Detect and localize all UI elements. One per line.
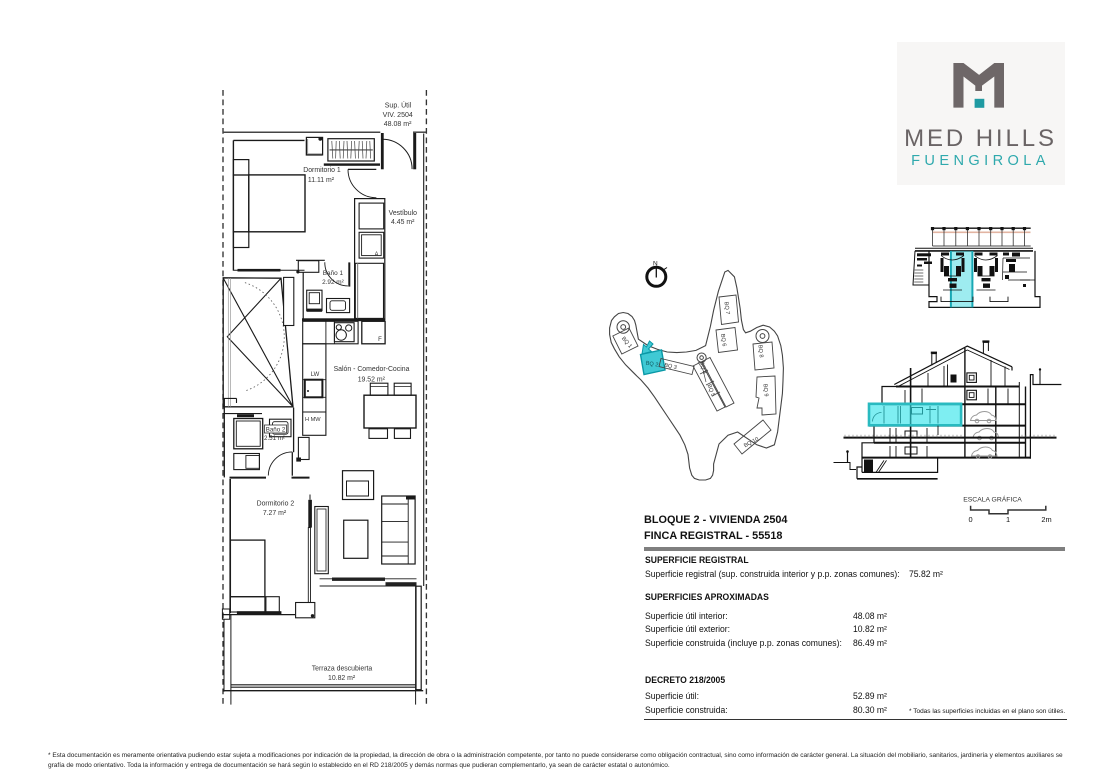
svg-text:H MW: H MW: [305, 417, 321, 423]
svg-text:Vestíbulo: Vestíbulo: [389, 210, 418, 217]
svg-text:10.82 m²: 10.82 m²: [328, 675, 356, 682]
svg-text:VIV. 2504: VIV. 2504: [383, 112, 413, 119]
svg-text:BQ 9: BQ 9: [762, 384, 769, 397]
svg-text:BQ 7: BQ 7: [723, 301, 731, 314]
svg-text:LW: LW: [311, 372, 320, 378]
svg-text:2m: 2m: [1041, 515, 1051, 524]
svg-text:FUENGIROLA: FUENGIROLA: [911, 153, 1050, 169]
svg-text:2.51 m²: 2.51 m²: [264, 435, 285, 442]
svg-text:MED HILLS: MED HILLS: [904, 125, 1057, 152]
svg-text:19.52 m²: 19.52 m²: [358, 377, 386, 384]
svg-text:Salón - Comedor-Cocina: Salón - Comedor-Cocina: [334, 366, 410, 373]
svg-text:11.11 m²: 11.11 m²: [308, 177, 335, 184]
svg-text:BQ 6: BQ 6: [719, 333, 727, 346]
svg-text:1: 1: [1006, 515, 1010, 524]
svg-text:Baño 2: Baño 2: [266, 426, 286, 433]
svg-text:N: N: [653, 261, 658, 268]
svg-text:48.08 m²: 48.08 m²: [384, 121, 412, 128]
svg-text:F: F: [378, 337, 382, 343]
svg-text:Terraza descubierta: Terraza descubierta: [312, 665, 373, 672]
svg-text:Baño 1: Baño 1: [323, 270, 344, 277]
svg-text:A: A: [374, 252, 378, 258]
svg-text:Sup. Útil: Sup. Útil: [385, 100, 412, 109]
svg-text:BQ 1: BQ 1: [620, 336, 633, 350]
svg-text:BQ 10: BQ 10: [743, 437, 760, 450]
svg-text:2.92 m²: 2.92 m²: [322, 279, 344, 286]
svg-text:BQ 8: BQ 8: [757, 345, 764, 358]
svg-text:Dormitorio 2: Dormitorio 2: [257, 500, 295, 507]
svg-text:0: 0: [969, 515, 973, 524]
svg-text:ESCALA GRÁFICA: ESCALA GRÁFICA: [963, 495, 1022, 504]
svg-text:7.27 m²: 7.27 m²: [263, 510, 287, 517]
svg-text:Dormitorio 1: Dormitorio 1: [303, 167, 341, 174]
svg-text:4.45 m²: 4.45 m²: [391, 219, 415, 226]
